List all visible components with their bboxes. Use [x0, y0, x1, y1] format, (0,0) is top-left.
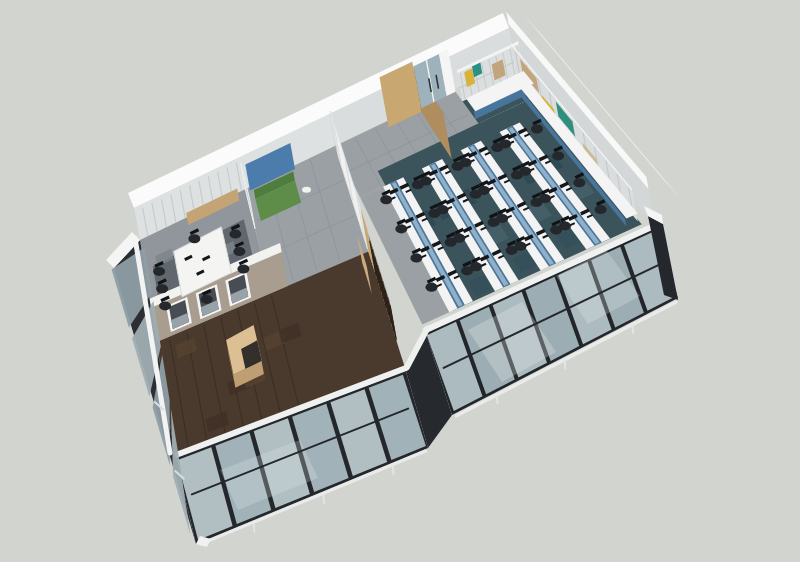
nook-side-table	[302, 187, 311, 193]
office-3d-render	[0, 0, 800, 562]
office-render-canvas	[0, 0, 800, 562]
